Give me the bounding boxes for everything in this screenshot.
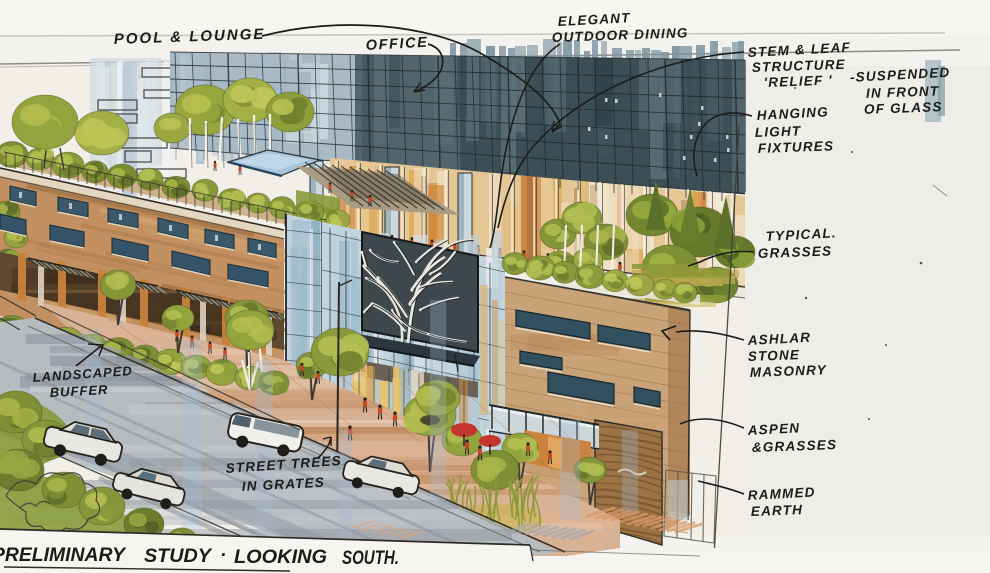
svg-text:STUDY: STUDY <box>144 546 213 567</box>
svg-text:ASPEN: ASPEN <box>746 420 800 438</box>
svg-text:MASONRY: MASONRY <box>750 362 828 380</box>
svg-text:OF GLASS: OF GLASS <box>864 99 943 117</box>
svg-text:GRASSES: GRASSES <box>758 243 833 261</box>
svg-text:OFFICE: OFFICE <box>365 35 429 54</box>
svg-text:LOOKING: LOOKING <box>234 547 327 568</box>
svg-text:BUFFER: BUFFER <box>49 382 108 400</box>
svg-text:'RELIEF ': 'RELIEF ' <box>764 73 833 90</box>
svg-text:FIXTURES: FIXTURES <box>758 138 835 156</box>
svg-text:·: · <box>220 545 226 566</box>
svg-text:PRELIMINARY: PRELIMINARY <box>0 545 127 566</box>
svg-text:LIGHT: LIGHT <box>755 123 803 140</box>
svg-text:STONE: STONE <box>748 347 801 364</box>
svg-text:IN FRONT: IN FRONT <box>866 83 940 101</box>
svg-text:SOUTH.: SOUTH. <box>342 548 399 569</box>
svg-text:&GRASSES: &GRASSES <box>752 437 838 455</box>
svg-text:EARTH: EARTH <box>751 502 804 519</box>
